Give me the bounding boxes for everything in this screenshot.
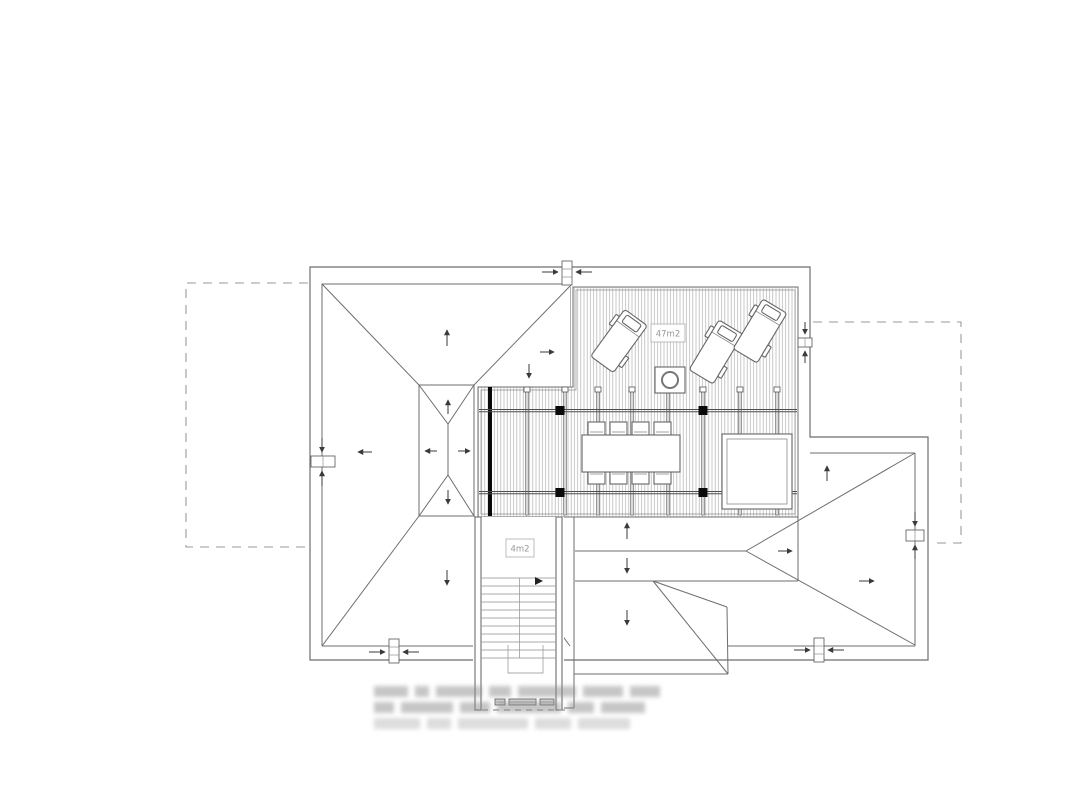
stair-area-text: 4m2 xyxy=(510,545,529,555)
vent-marker-top xyxy=(542,261,592,285)
stair-area-label: 4m2 xyxy=(506,539,534,557)
left-dashed-boundary xyxy=(186,283,308,547)
roof-plan-drawing: 47m2 4m2 xyxy=(0,0,1066,800)
vent-marker-left xyxy=(311,438,335,486)
watermark-blur xyxy=(374,686,686,744)
vent-marker-bottom-right xyxy=(794,638,844,662)
lower-middle-roof xyxy=(562,517,798,708)
right-dashed-boundary xyxy=(813,322,961,543)
pergola-main-post xyxy=(488,387,492,516)
terrace-area-label: 47m2 xyxy=(651,324,685,342)
grill-unit xyxy=(655,367,685,393)
terrace-area-text: 47m2 xyxy=(656,330,681,340)
square-table xyxy=(722,434,792,509)
stairwell: 4m2 xyxy=(473,517,566,711)
floor-plan-canvas: 47m2 4m2 xyxy=(0,0,1066,800)
watermark-row xyxy=(374,686,686,697)
watermark-row xyxy=(374,718,686,729)
vent-marker-right-mid xyxy=(906,512,924,559)
watermark-row xyxy=(374,702,686,713)
